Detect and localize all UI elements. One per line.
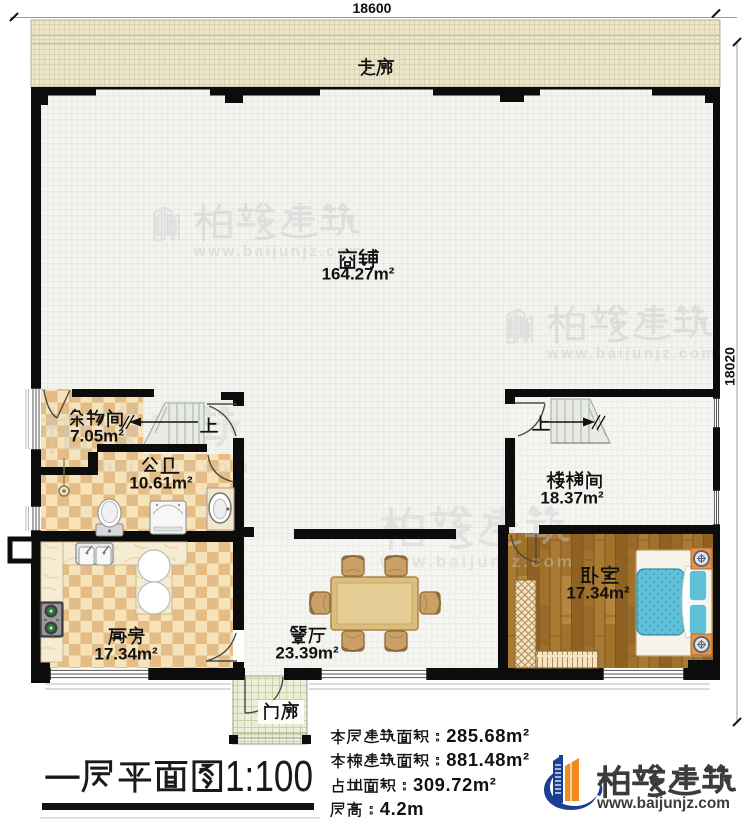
svg-text:18.37m²: 18.37m² (540, 489, 604, 508)
svg-text:23.39m²: 23.39m² (275, 644, 339, 663)
svg-text:17.34m²: 17.34m² (94, 645, 158, 664)
svg-text:1:100: 1:100 (225, 752, 313, 801)
svg-text:18600: 18600 (353, 0, 392, 16)
svg-text:17.34m²: 17.34m² (566, 584, 630, 603)
svg-text:309.72m²: 309.72m² (413, 774, 497, 795)
svg-text:4.2m: 4.2m (380, 798, 424, 819)
svg-text:www.baijunjz.com: www.baijunjz.com (596, 795, 730, 812)
svg-text:881.48m²: 881.48m² (446, 749, 530, 770)
svg-text:285.68m²: 285.68m² (446, 725, 530, 746)
svg-text:164.27m²: 164.27m² (322, 265, 395, 284)
svg-text:7.05m²: 7.05m² (70, 427, 124, 446)
svg-text:10.61m²: 10.61m² (129, 474, 193, 493)
svg-text:18020: 18020 (722, 347, 738, 386)
